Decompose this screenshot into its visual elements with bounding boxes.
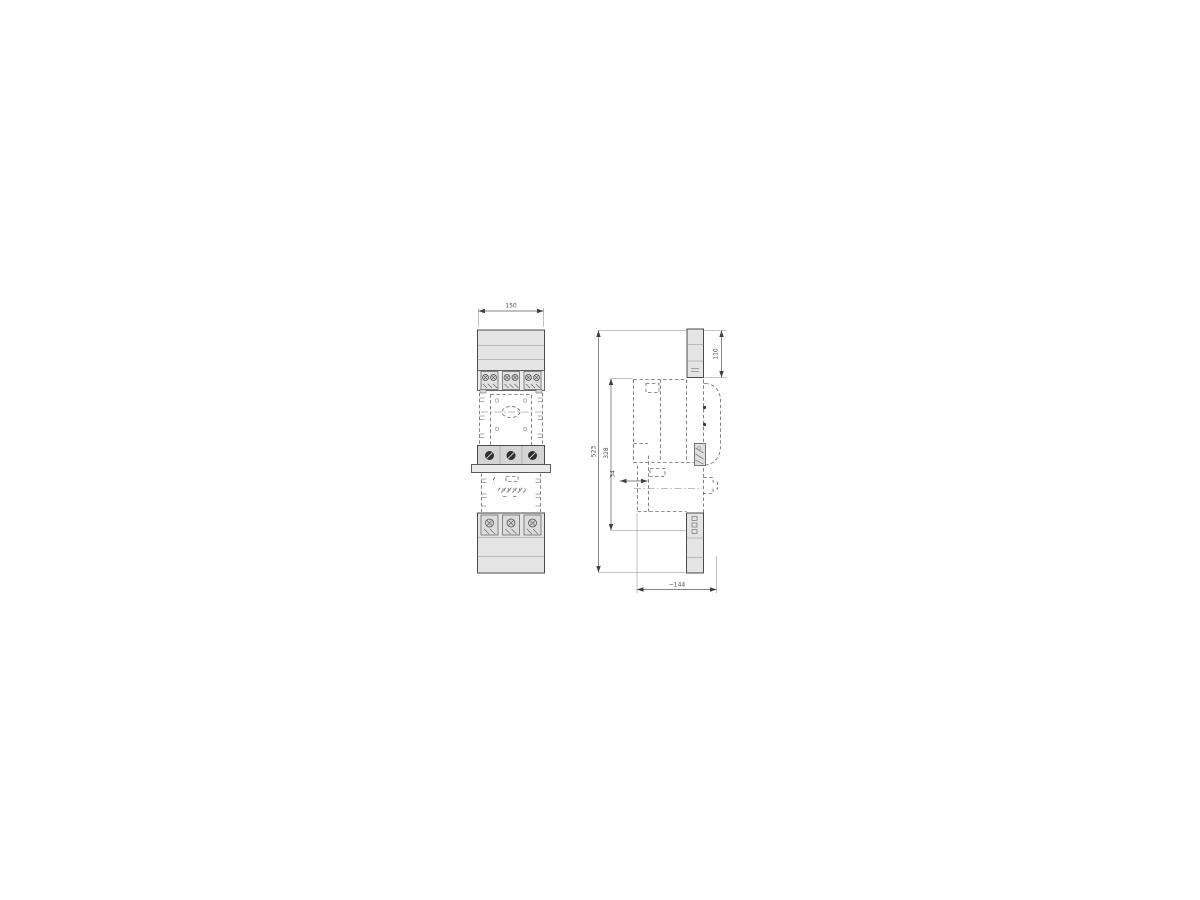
screw-symbol [485, 451, 494, 460]
side-view-body-outline [634, 380, 721, 514]
dimension-mount-offset: 34 [610, 470, 648, 483]
dimension-side-top: 110 [705, 331, 727, 378]
dimension-body-height: 328 [603, 379, 688, 531]
mounting-flange [472, 465, 551, 473]
front-view-line-terminals [478, 371, 545, 394]
dim-label-depth: ~144 [669, 582, 686, 589]
front-view-bottom-terminals [478, 513, 545, 573]
terminal-clamp [503, 372, 520, 390]
front-view: 150 [472, 303, 551, 574]
front-view-top-box [478, 330, 545, 371]
terminal-clamp [481, 372, 498, 390]
terminal-clamp [503, 515, 520, 535]
terminal-clamp [524, 515, 541, 535]
marker-dot [703, 423, 706, 426]
front-view-overload-body [482, 474, 541, 513]
dim-label-overall-height: 523 [591, 446, 598, 458]
dim-label-mount-offset: 34 [610, 470, 617, 478]
side-view-top-busbar [687, 329, 704, 378]
side-view-bottom-busbar [687, 513, 704, 573]
dimension-depth: ~144 [637, 514, 717, 594]
drawing-canvas: 150 [0, 0, 1200, 900]
dim-label-front-width: 150 [505, 303, 517, 310]
front-view-coil-body [480, 393, 543, 447]
dimension-front-width: 150 [479, 303, 544, 328]
side-view-terminal-block [695, 444, 706, 466]
mounting-foot [480, 390, 486, 394]
screw-symbol [507, 451, 516, 460]
front-view-main-terminals [472, 446, 551, 473]
dim-label-body-height: 328 [603, 447, 610, 459]
marker-dot [703, 406, 706, 409]
terminal-clamp [481, 515, 498, 535]
screw-symbol [528, 451, 537, 460]
terminal-clamp [524, 372, 541, 390]
mounting-foot [536, 390, 542, 394]
dimension-drawing: 150 [0, 0, 1200, 900]
dim-label-side-top: 110 [713, 348, 720, 360]
side-view: 110 523 328 34 [591, 329, 727, 593]
